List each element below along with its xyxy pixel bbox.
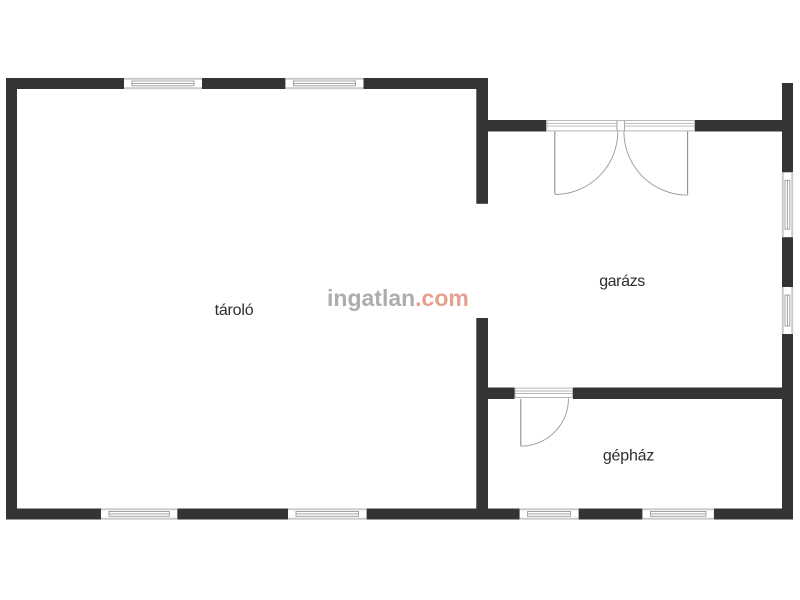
svg-text:gépház: gépház xyxy=(603,448,654,465)
svg-text:garázs: garázs xyxy=(599,273,645,290)
svg-text:ingatlan.com: ingatlan.com xyxy=(327,285,469,311)
svg-text:tároló: tároló xyxy=(215,302,254,319)
